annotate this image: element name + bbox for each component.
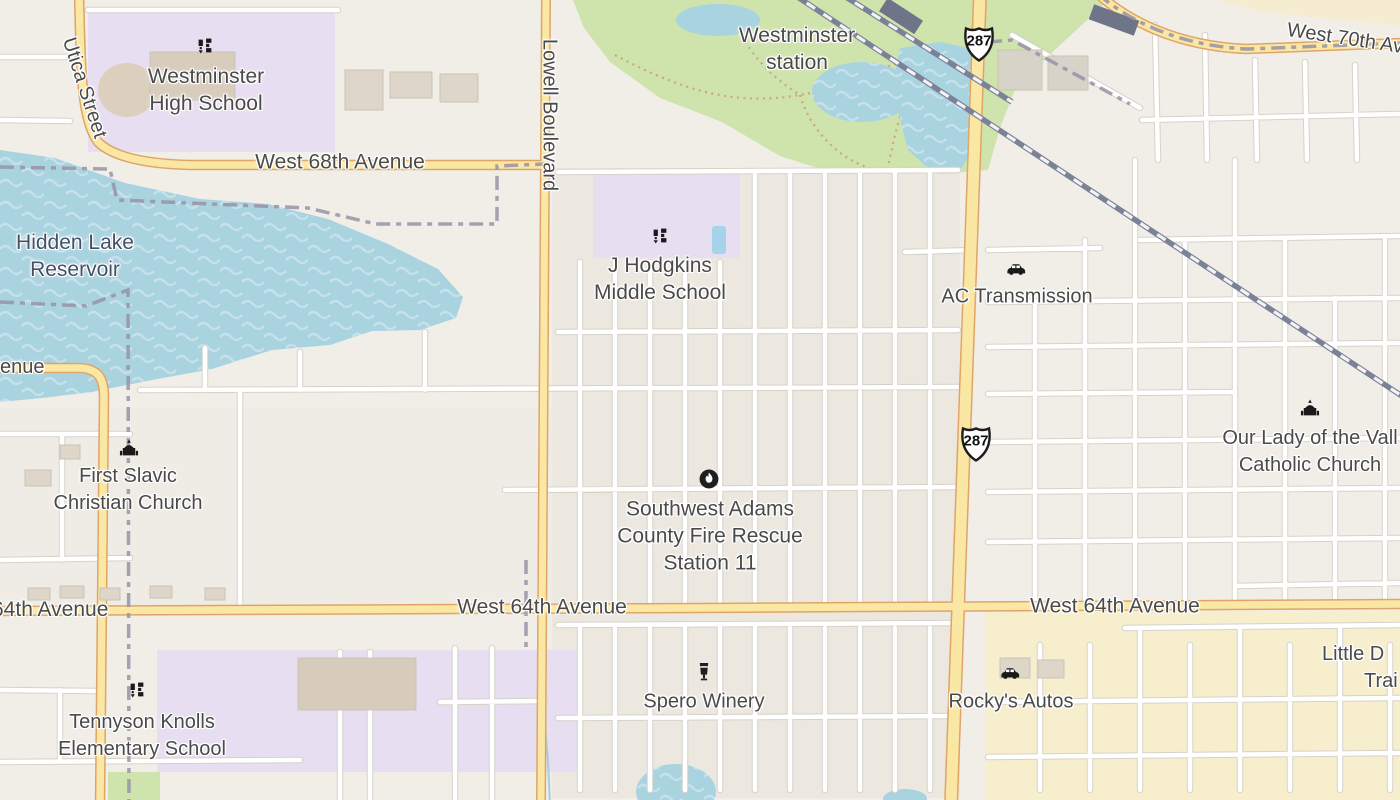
place-label-our-lady: Our Lady of the Vall Catholic Church (1222, 425, 1397, 479)
shield-number: 287 (956, 433, 996, 450)
place-label-spero-winery: Spero Winery (643, 689, 764, 716)
car-icon (1000, 665, 1020, 679)
place-label-westminster-high-school: Westminster High School (148, 63, 264, 117)
school-icon (652, 228, 669, 245)
water-label-hidden-lake-reservoir: Hidden Lake Reservoir (16, 229, 134, 283)
place-label-little-d: Little D Trai (1322, 641, 1398, 695)
us-287-shield: 287 (956, 426, 996, 463)
shield-number: 287 (959, 33, 999, 50)
green-southwest (108, 772, 160, 800)
road-label-64th-left: 64th Avenue (0, 596, 108, 623)
map-canvas[interactable]: 287 287 Westminster High School Utica St… (0, 0, 1400, 800)
road-label-lowell-boulevard: Lowell Boulevard (536, 39, 563, 191)
school-icon (197, 38, 214, 55)
school-icon (129, 682, 146, 699)
road-label-west-64th-center: West 64th Avenue (457, 594, 627, 621)
place-label-ac-transmission: AC Transmission (941, 284, 1092, 311)
place-label-rockys-autos: Rocky's Autos (949, 689, 1074, 716)
school-pool (712, 226, 726, 254)
fire-station-icon (699, 469, 719, 489)
church-icon (119, 440, 140, 457)
place-label-j-hodgkins: J Hodgkins Middle School (594, 252, 726, 306)
us-287-shield: 287 (959, 26, 999, 63)
road-label-west-64th-right: West 64th Avenue (1030, 593, 1200, 620)
church-icon (1300, 400, 1321, 417)
place-label-westminster-station: Westminster station (739, 22, 855, 76)
road-label-west-68th: West 68th Avenue (255, 149, 425, 176)
place-label-fire-station: Southwest Adams County Fire Rescue Stati… (617, 496, 803, 577)
place-label-first-slavic: First Slavic Christian Church (54, 463, 203, 517)
place-label-tennyson: Tennyson Knolls Elementary School (58, 709, 226, 763)
road-label-avenue-partial: venue (0, 354, 45, 381)
winery-icon (697, 662, 712, 682)
car-icon (1006, 261, 1026, 275)
